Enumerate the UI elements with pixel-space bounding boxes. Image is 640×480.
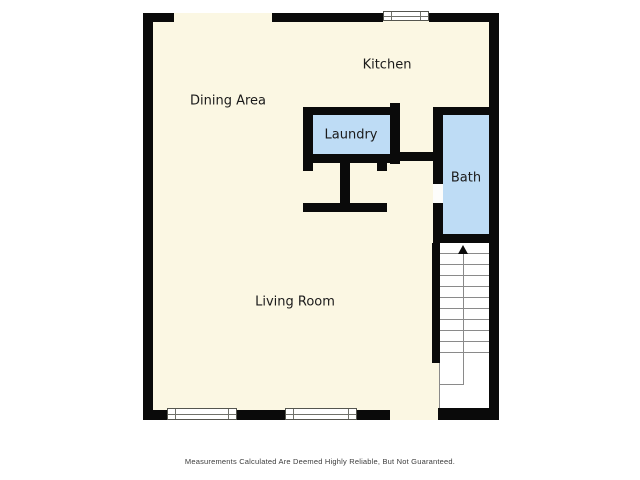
- floorplan-canvas: Kitchen Dining Area Laundry Bath Living …: [0, 0, 640, 480]
- wall-segment: [143, 13, 153, 420]
- stair-direction-line-turn: [440, 384, 464, 385]
- wall-segment: [357, 410, 390, 420]
- stair-treads: [440, 243, 489, 354]
- window-frame-line: [391, 12, 392, 20]
- window-frame-line: [228, 409, 229, 419]
- stair-direction-line: [463, 252, 464, 385]
- room-label-dining-area: Dining Area: [190, 94, 266, 109]
- wall-segment: [303, 203, 387, 212]
- bath-door-opening: [433, 184, 443, 203]
- window: [167, 408, 237, 420]
- wall-segment: [398, 152, 437, 161]
- stair-landing-border: [439, 363, 440, 408]
- wall-segment: [377, 163, 387, 171]
- window-frame-line: [293, 409, 294, 419]
- stairs-up-arrow-icon: [458, 245, 468, 254]
- wall-segment: [272, 13, 383, 22]
- window-mullion: [168, 414, 236, 415]
- room-label-kitchen: Kitchen: [363, 58, 412, 73]
- room-label-bath: Bath: [451, 171, 481, 186]
- window-frame-line: [175, 409, 176, 419]
- wall-segment: [489, 13, 499, 420]
- wall-segment: [433, 234, 499, 243]
- wall-segment: [143, 410, 168, 420]
- wall-segment: [438, 408, 497, 420]
- room-label-living-room: Living Room: [255, 295, 335, 310]
- wall-segment: [303, 154, 390, 163]
- window-mullion: [286, 414, 356, 415]
- window: [383, 11, 429, 21]
- room-label-laundry: Laundry: [325, 128, 378, 143]
- window: [285, 408, 357, 420]
- wall-segment: [237, 410, 285, 420]
- wall-segment: [432, 243, 440, 363]
- window-frame-line: [420, 12, 421, 20]
- wall-segment: [303, 107, 400, 115]
- wall-segment: [433, 107, 443, 184]
- window-frame-line: [348, 409, 349, 419]
- measurements-disclaimer: Measurements Calculated Are Deemed Highl…: [0, 457, 640, 466]
- wall-segment: [303, 163, 313, 171]
